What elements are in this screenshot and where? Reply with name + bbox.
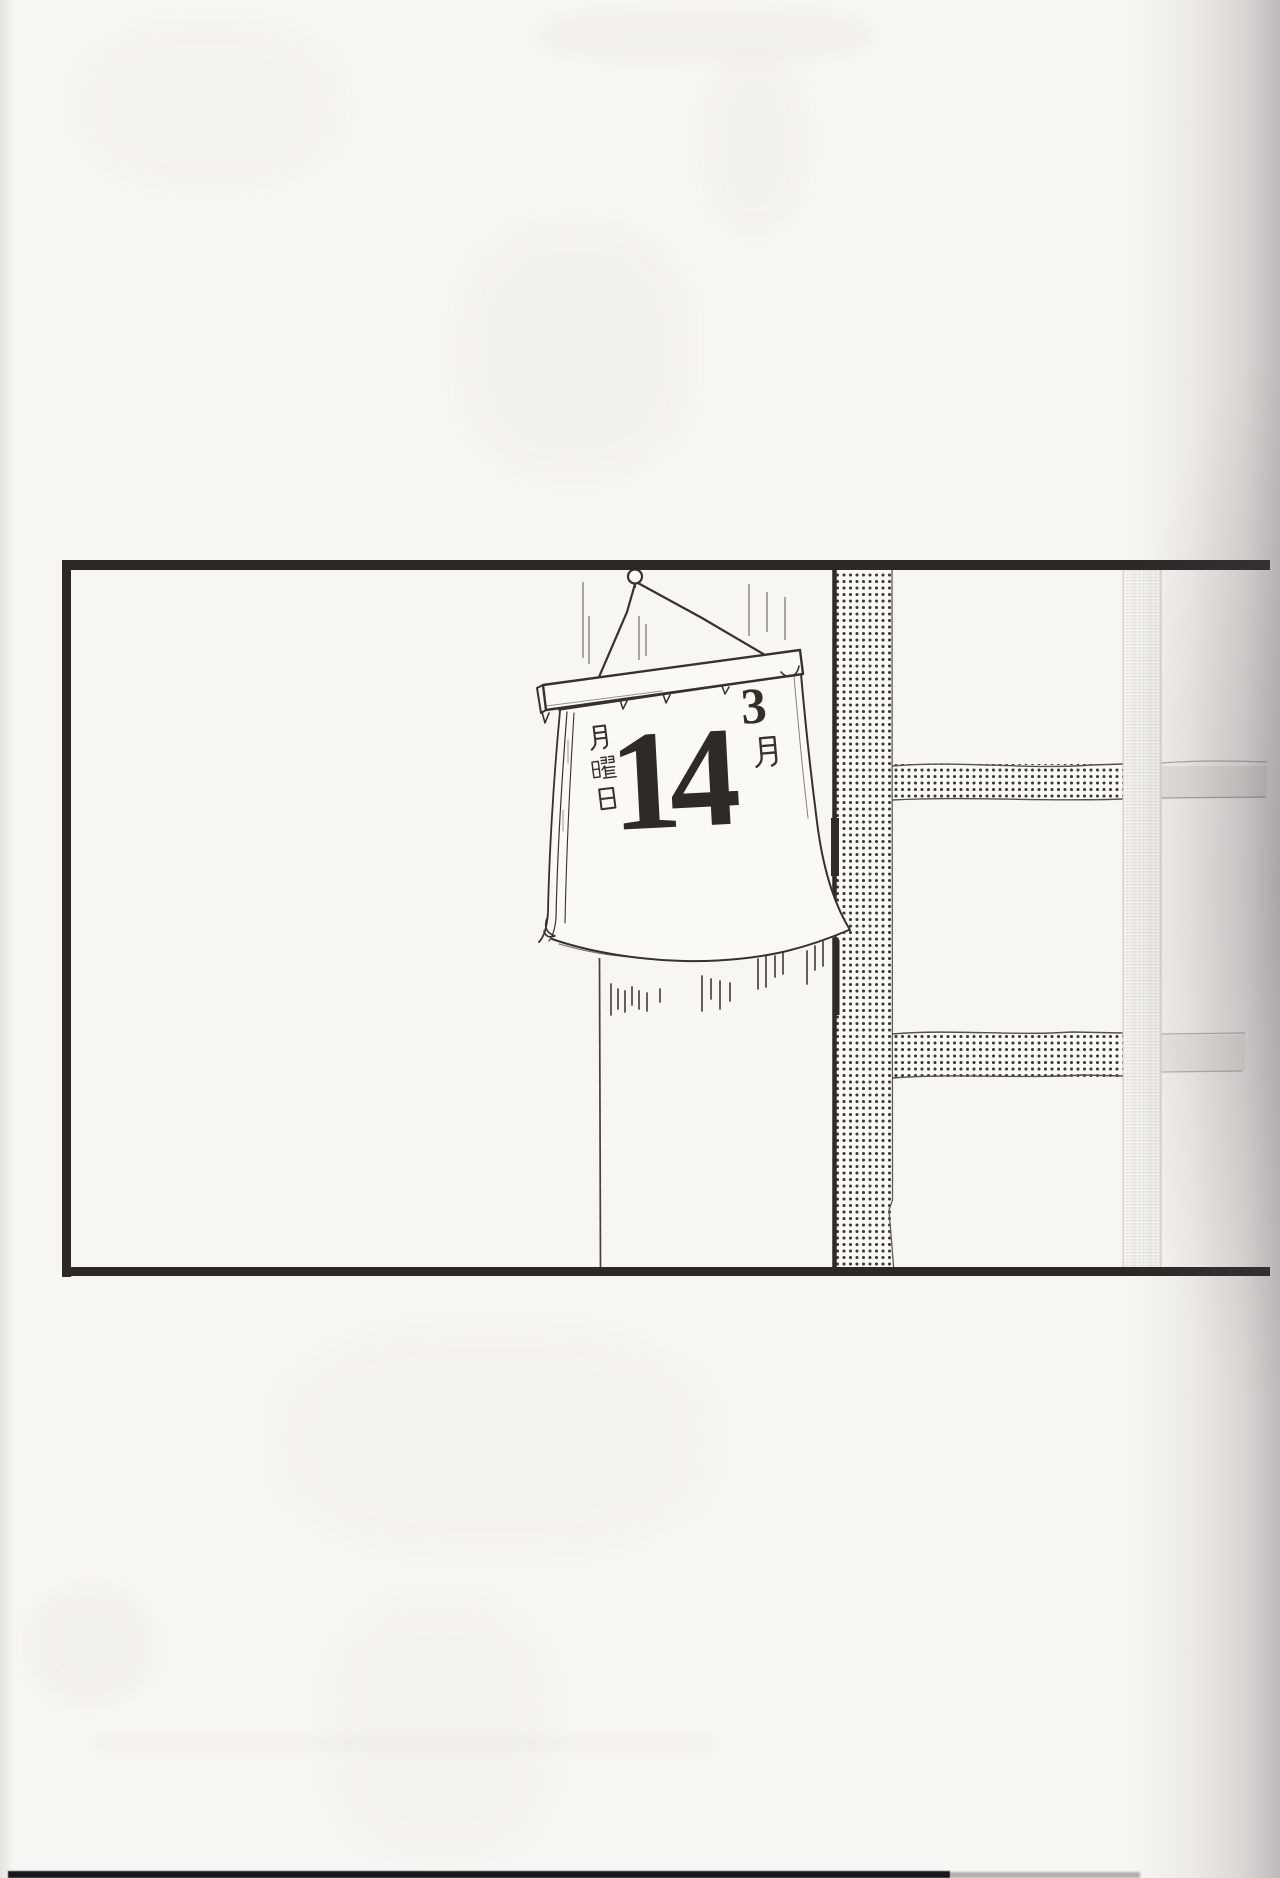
speed-lines [583, 582, 785, 664]
weekday-kanji-2 [588, 753, 618, 783]
manga-page-scan: 14 3 [0, 0, 1280, 1878]
calendar-hook [628, 570, 642, 584]
bleedthrough-smudge [95, 1735, 715, 1751]
bleedthrough-smudge [540, 8, 870, 62]
weekday-kanji-1 [584, 722, 614, 752]
calendar-month-number: 3 [739, 681, 768, 734]
calendar-month-kanji [748, 730, 785, 773]
bleedthrough-smudge [280, 1330, 710, 1550]
scan-bottom-edge [8, 1871, 950, 1878]
bleedthrough-smudge [30, 1590, 150, 1700]
page-curl-shadow-core [1050, 0, 1280, 1878]
scan-left-shade [0, 0, 14, 1878]
bleedthrough-smudge [705, 55, 805, 230]
calendar-day-number: 14 [606, 705, 731, 853]
weekday-kanji-3 [592, 783, 622, 813]
bleedthrough-smudge [330, 1600, 550, 1860]
scan-bottom-edge-faint [950, 1872, 1140, 1878]
bleedthrough-smudge [80, 25, 340, 185]
bleedthrough-smudge [460, 225, 690, 475]
wall-corner-line [600, 958, 601, 1272]
